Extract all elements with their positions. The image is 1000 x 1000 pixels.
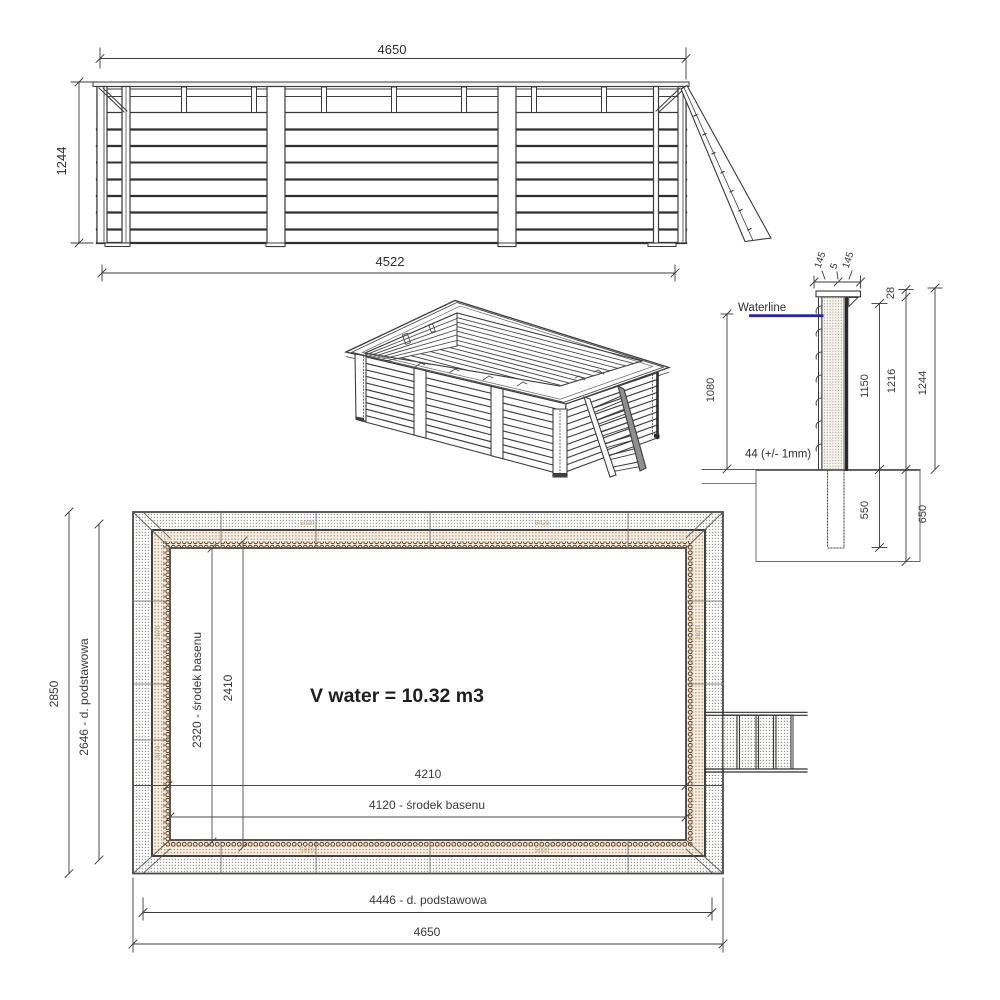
- svg-text:4650: 4650: [378, 42, 407, 57]
- svg-text:5020: 5020: [300, 847, 315, 854]
- svg-text:2320 - środek basenu: 2320 - środek basenu: [190, 632, 204, 748]
- svg-text:1244: 1244: [54, 147, 69, 176]
- svg-text:1080: 1080: [705, 378, 717, 402]
- svg-text:4522: 4522: [376, 254, 405, 269]
- svg-text:5020: 5020: [535, 520, 550, 527]
- svg-text:4120 - środek basenu: 4120 - środek basenu: [369, 798, 485, 812]
- svg-text:5020: 5020: [300, 520, 315, 527]
- svg-text:1244: 1244: [917, 371, 929, 395]
- svg-text:2870: 2870: [155, 625, 162, 640]
- svg-text:4446 - d. podstawowa: 4446 - d. podstawowa: [369, 893, 487, 907]
- svg-text:2410: 2410: [221, 674, 235, 701]
- svg-text:2646 - d. podstawowa: 2646 - d. podstawowa: [77, 638, 91, 756]
- svg-text:1150: 1150: [859, 374, 871, 398]
- svg-text:Waterline: Waterline: [738, 302, 786, 314]
- svg-text:4210: 4210: [415, 767, 442, 781]
- svg-text:2870: 2870: [155, 745, 162, 760]
- svg-text:650: 650: [917, 505, 929, 523]
- svg-text:5020: 5020: [535, 847, 550, 854]
- svg-text:4650: 4650: [414, 925, 441, 939]
- svg-text:2850: 2850: [47, 680, 61, 707]
- svg-text:1216: 1216: [886, 369, 898, 393]
- svg-text:44 (+/- 1mm): 44 (+/- 1mm): [745, 449, 811, 461]
- svg-text:550: 550: [859, 501, 871, 519]
- svg-text:V water = 10.32 m3: V water = 10.32 m3: [310, 685, 484, 707]
- svg-text:2870: 2870: [695, 625, 702, 640]
- svg-text:28: 28: [885, 287, 897, 299]
